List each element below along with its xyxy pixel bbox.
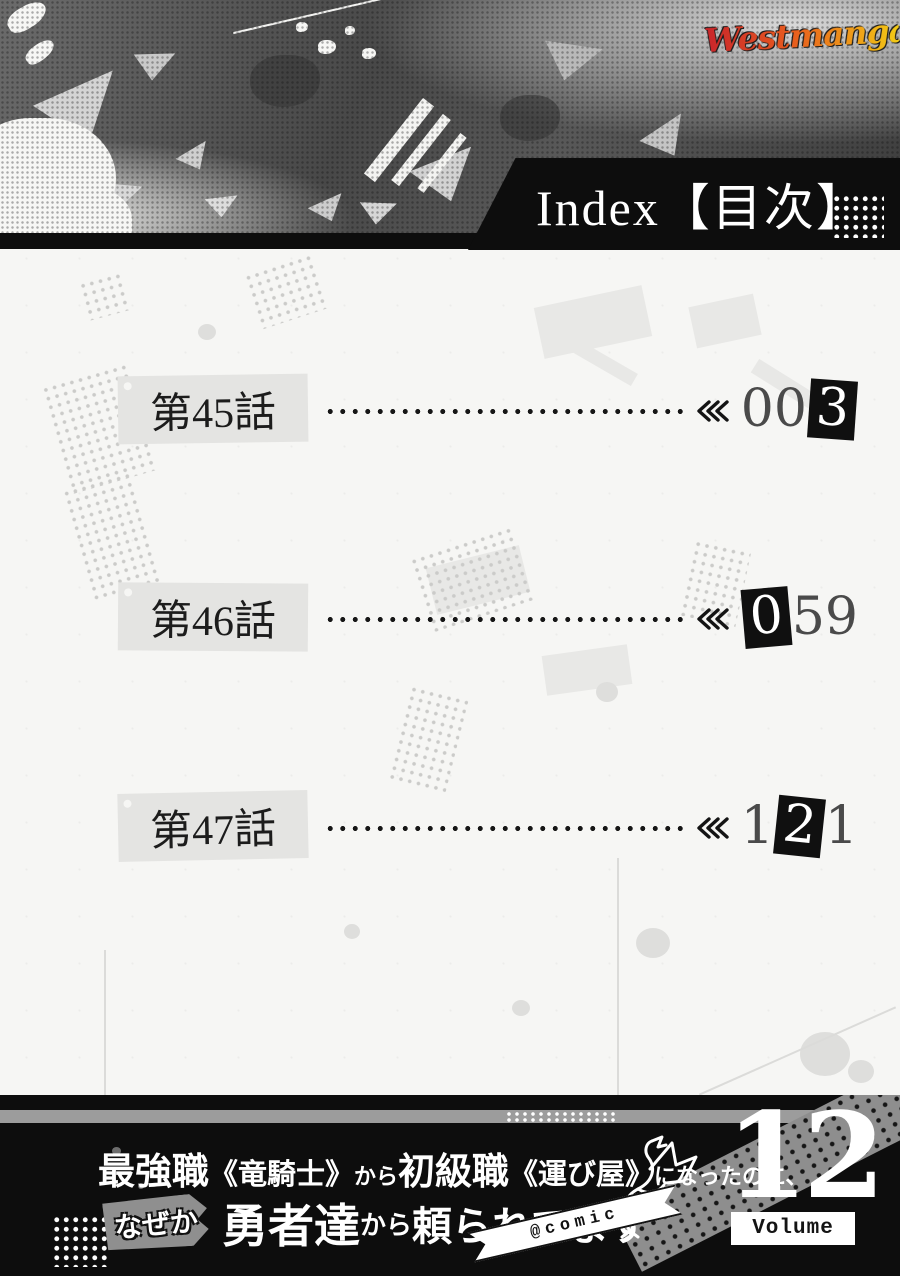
page-digit: 1 bbox=[825, 800, 858, 852]
triangle-decor bbox=[355, 194, 397, 229]
halftone-decor bbox=[387, 684, 469, 794]
dotted-leader bbox=[324, 616, 688, 623]
halftone-decor bbox=[78, 271, 133, 322]
white-slash-decor bbox=[364, 98, 434, 182]
chapter-label-ch46: 第46話 bbox=[118, 582, 308, 651]
halftone-decor bbox=[505, 1111, 615, 1122]
halftone-decor bbox=[243, 252, 331, 330]
leader-arrow-icon bbox=[696, 608, 730, 630]
gray-blob-decor bbox=[636, 928, 670, 958]
white-splatter-decor bbox=[318, 40, 336, 54]
toc-row-ch47: 第47話 121 bbox=[118, 792, 858, 860]
page-number-ch46: 059 bbox=[730, 588, 858, 647]
triangle-decor bbox=[533, 27, 602, 90]
triangle-decor bbox=[635, 114, 692, 165]
gray-blob-decor bbox=[848, 1060, 874, 1083]
title-segment: 最強職 bbox=[98, 1141, 209, 1195]
fold-line-decor bbox=[104, 950, 106, 1095]
white-line-decor bbox=[233, 0, 477, 34]
triangle-decor bbox=[407, 147, 476, 205]
volume-label-box: Volume bbox=[731, 1212, 855, 1245]
triangle-decor bbox=[306, 193, 346, 225]
leader-arrow-icon bbox=[696, 817, 730, 839]
chapter-label-ch47: 第47話 bbox=[117, 790, 308, 862]
gray-blob-decor bbox=[344, 924, 360, 939]
page-number-ch45: 003 bbox=[730, 380, 858, 439]
light-rect-decor bbox=[688, 294, 761, 349]
title-segment: 勇者達 bbox=[222, 1190, 360, 1256]
gray-blob-decor bbox=[596, 682, 618, 702]
white-slash-decor bbox=[391, 114, 451, 186]
leader-arrow-icon bbox=[696, 400, 730, 422]
gray-blob-decor bbox=[198, 324, 216, 340]
toc-row-ch46: 第46話 059 bbox=[118, 583, 858, 651]
page-digit-highlight: 0 bbox=[740, 586, 792, 649]
index-banner: Index【目次】 bbox=[468, 158, 900, 250]
toc-row-ch45: 第45話 003 bbox=[118, 375, 858, 443]
triangle-decor bbox=[129, 44, 176, 85]
triangle-decor bbox=[173, 141, 213, 175]
manga-index-page: Westmanga.tv Index【目次】 第45話 003 第46話 bbox=[0, 0, 900, 1276]
scratch-line-decor bbox=[699, 1006, 896, 1095]
chapter-label-ch45: 第45話 bbox=[118, 374, 309, 445]
page-digit: 59 bbox=[792, 591, 858, 643]
white-splatter-decor bbox=[345, 26, 355, 35]
light-rect-decor bbox=[542, 644, 633, 696]
dot-grid-decor bbox=[52, 1215, 110, 1267]
page-digit: 1 bbox=[741, 800, 774, 852]
white-slash-decor bbox=[417, 133, 466, 193]
white-splatter-decor bbox=[22, 36, 57, 67]
nazeka-bubble: なぜか bbox=[102, 1193, 210, 1254]
title-segment: から bbox=[354, 1159, 398, 1191]
triangle-decor bbox=[30, 70, 123, 149]
title-segment: 《竜騎士》 bbox=[209, 1151, 354, 1193]
dark-splatter-decor bbox=[500, 95, 560, 141]
dotted-leader bbox=[324, 408, 688, 415]
white-splatter-decor bbox=[296, 22, 308, 32]
dot-grid-decor bbox=[832, 194, 884, 238]
title-segment: 初級職 bbox=[398, 1141, 509, 1195]
series-title-banner: 最強職 《竜騎士》 から 初級職 《運び屋》 になったのに、 なぜか 勇者達 か… bbox=[0, 1095, 900, 1276]
title-segment: から bbox=[360, 1205, 412, 1242]
page-digit-highlight: 3 bbox=[807, 378, 858, 440]
page-digit-highlight: 2 bbox=[773, 794, 826, 858]
white-splatter-decor bbox=[362, 48, 376, 59]
page-title-en: Index bbox=[536, 180, 660, 236]
page-digit: 00 bbox=[741, 383, 807, 435]
triangle-decor bbox=[202, 191, 237, 219]
page-number-ch47: 121 bbox=[730, 797, 858, 856]
gray-blob-decor bbox=[512, 1000, 530, 1016]
dark-splatter-decor bbox=[250, 55, 320, 107]
triangle-decor bbox=[102, 175, 143, 211]
fold-line-decor bbox=[617, 858, 619, 1095]
dotted-leader bbox=[324, 825, 688, 832]
page-title: Index【目次】 bbox=[536, 168, 868, 240]
white-splatter-decor bbox=[0, 118, 116, 248]
white-splatter-decor bbox=[3, 0, 50, 37]
